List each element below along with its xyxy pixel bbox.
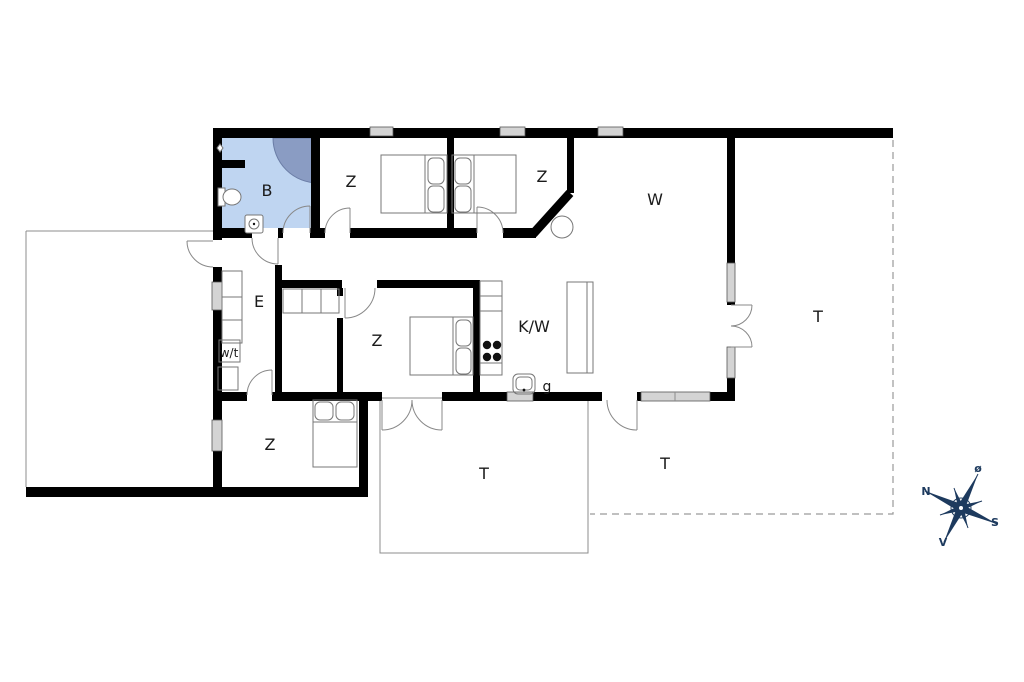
window-west-2 xyxy=(212,420,222,451)
terrace-west-outline xyxy=(26,231,213,487)
room-label-living-room: W xyxy=(647,190,663,209)
room-label-entrance: E xyxy=(254,292,264,311)
walls xyxy=(26,128,893,497)
room-label-bedroom-lower: Z xyxy=(265,435,276,454)
room-label-utility: w/t xyxy=(220,346,239,360)
window-top-2 xyxy=(500,127,525,136)
room-label-bathroom: B xyxy=(262,181,273,200)
entrance-closet xyxy=(222,271,242,343)
room-label-bedroom-middle: Z xyxy=(372,331,383,350)
floorplan-page: B Z Z W E Z Z K/W w/t g T T T ø N S V xyxy=(0,0,1024,682)
bedroom1-door xyxy=(325,208,350,233)
window-east-2 xyxy=(727,347,735,378)
entrance-inner-door xyxy=(252,238,278,264)
compass-label-east: ø xyxy=(974,462,982,475)
terrace-french-door-right xyxy=(412,400,442,430)
bed-lower xyxy=(313,400,357,467)
window-east-1 xyxy=(727,263,735,302)
entrance-door-gap xyxy=(213,240,222,267)
compass-label-south: S xyxy=(991,516,999,529)
compass-label-west: V xyxy=(939,536,948,549)
east-french-door-lower xyxy=(731,326,752,347)
hall-wardrobe xyxy=(283,289,339,313)
room-label-terrace-southeast: T xyxy=(659,454,670,473)
bedroom-middle-door xyxy=(345,288,375,318)
floorplan-drawing: B Z Z W E Z Z K/W w/t g T T T ø N S V xyxy=(0,0,1024,682)
kitchen-sink-icon xyxy=(513,374,535,394)
compass-label-north: N xyxy=(921,485,930,498)
room-label-bedroom-top-right: Z xyxy=(537,167,548,186)
compass-rose: ø N S V xyxy=(921,462,999,549)
window-south-1 xyxy=(507,392,533,401)
front-door xyxy=(187,241,213,267)
window-top-1 xyxy=(370,127,393,136)
window-top-3 xyxy=(598,127,623,136)
terrace-french-door-left xyxy=(382,400,412,430)
window-west-1 xyxy=(212,282,222,310)
stove-icon xyxy=(483,341,491,349)
bedroom2-door xyxy=(477,207,503,233)
bed-top-left xyxy=(381,155,447,213)
room-label-terrace-east: T xyxy=(812,307,823,326)
room-label-bedroom-top-left: Z xyxy=(346,172,357,191)
kitchen-counter xyxy=(480,281,502,375)
room-label-terrace-south: T xyxy=(478,464,489,483)
side-table-icon xyxy=(551,216,573,238)
bed-middle xyxy=(410,317,473,375)
bedroom-lower-door xyxy=(247,370,272,395)
label-grill: g xyxy=(543,379,552,395)
kitchen-island xyxy=(567,282,593,373)
room-label-kitchen: K/W xyxy=(518,317,550,336)
terrace-east-door xyxy=(607,400,637,430)
east-french-door-upper xyxy=(731,305,752,326)
terrace-east-dashed-boundary xyxy=(590,140,893,514)
toilet-bowl-icon xyxy=(223,189,241,205)
bed-top-right xyxy=(452,155,516,213)
